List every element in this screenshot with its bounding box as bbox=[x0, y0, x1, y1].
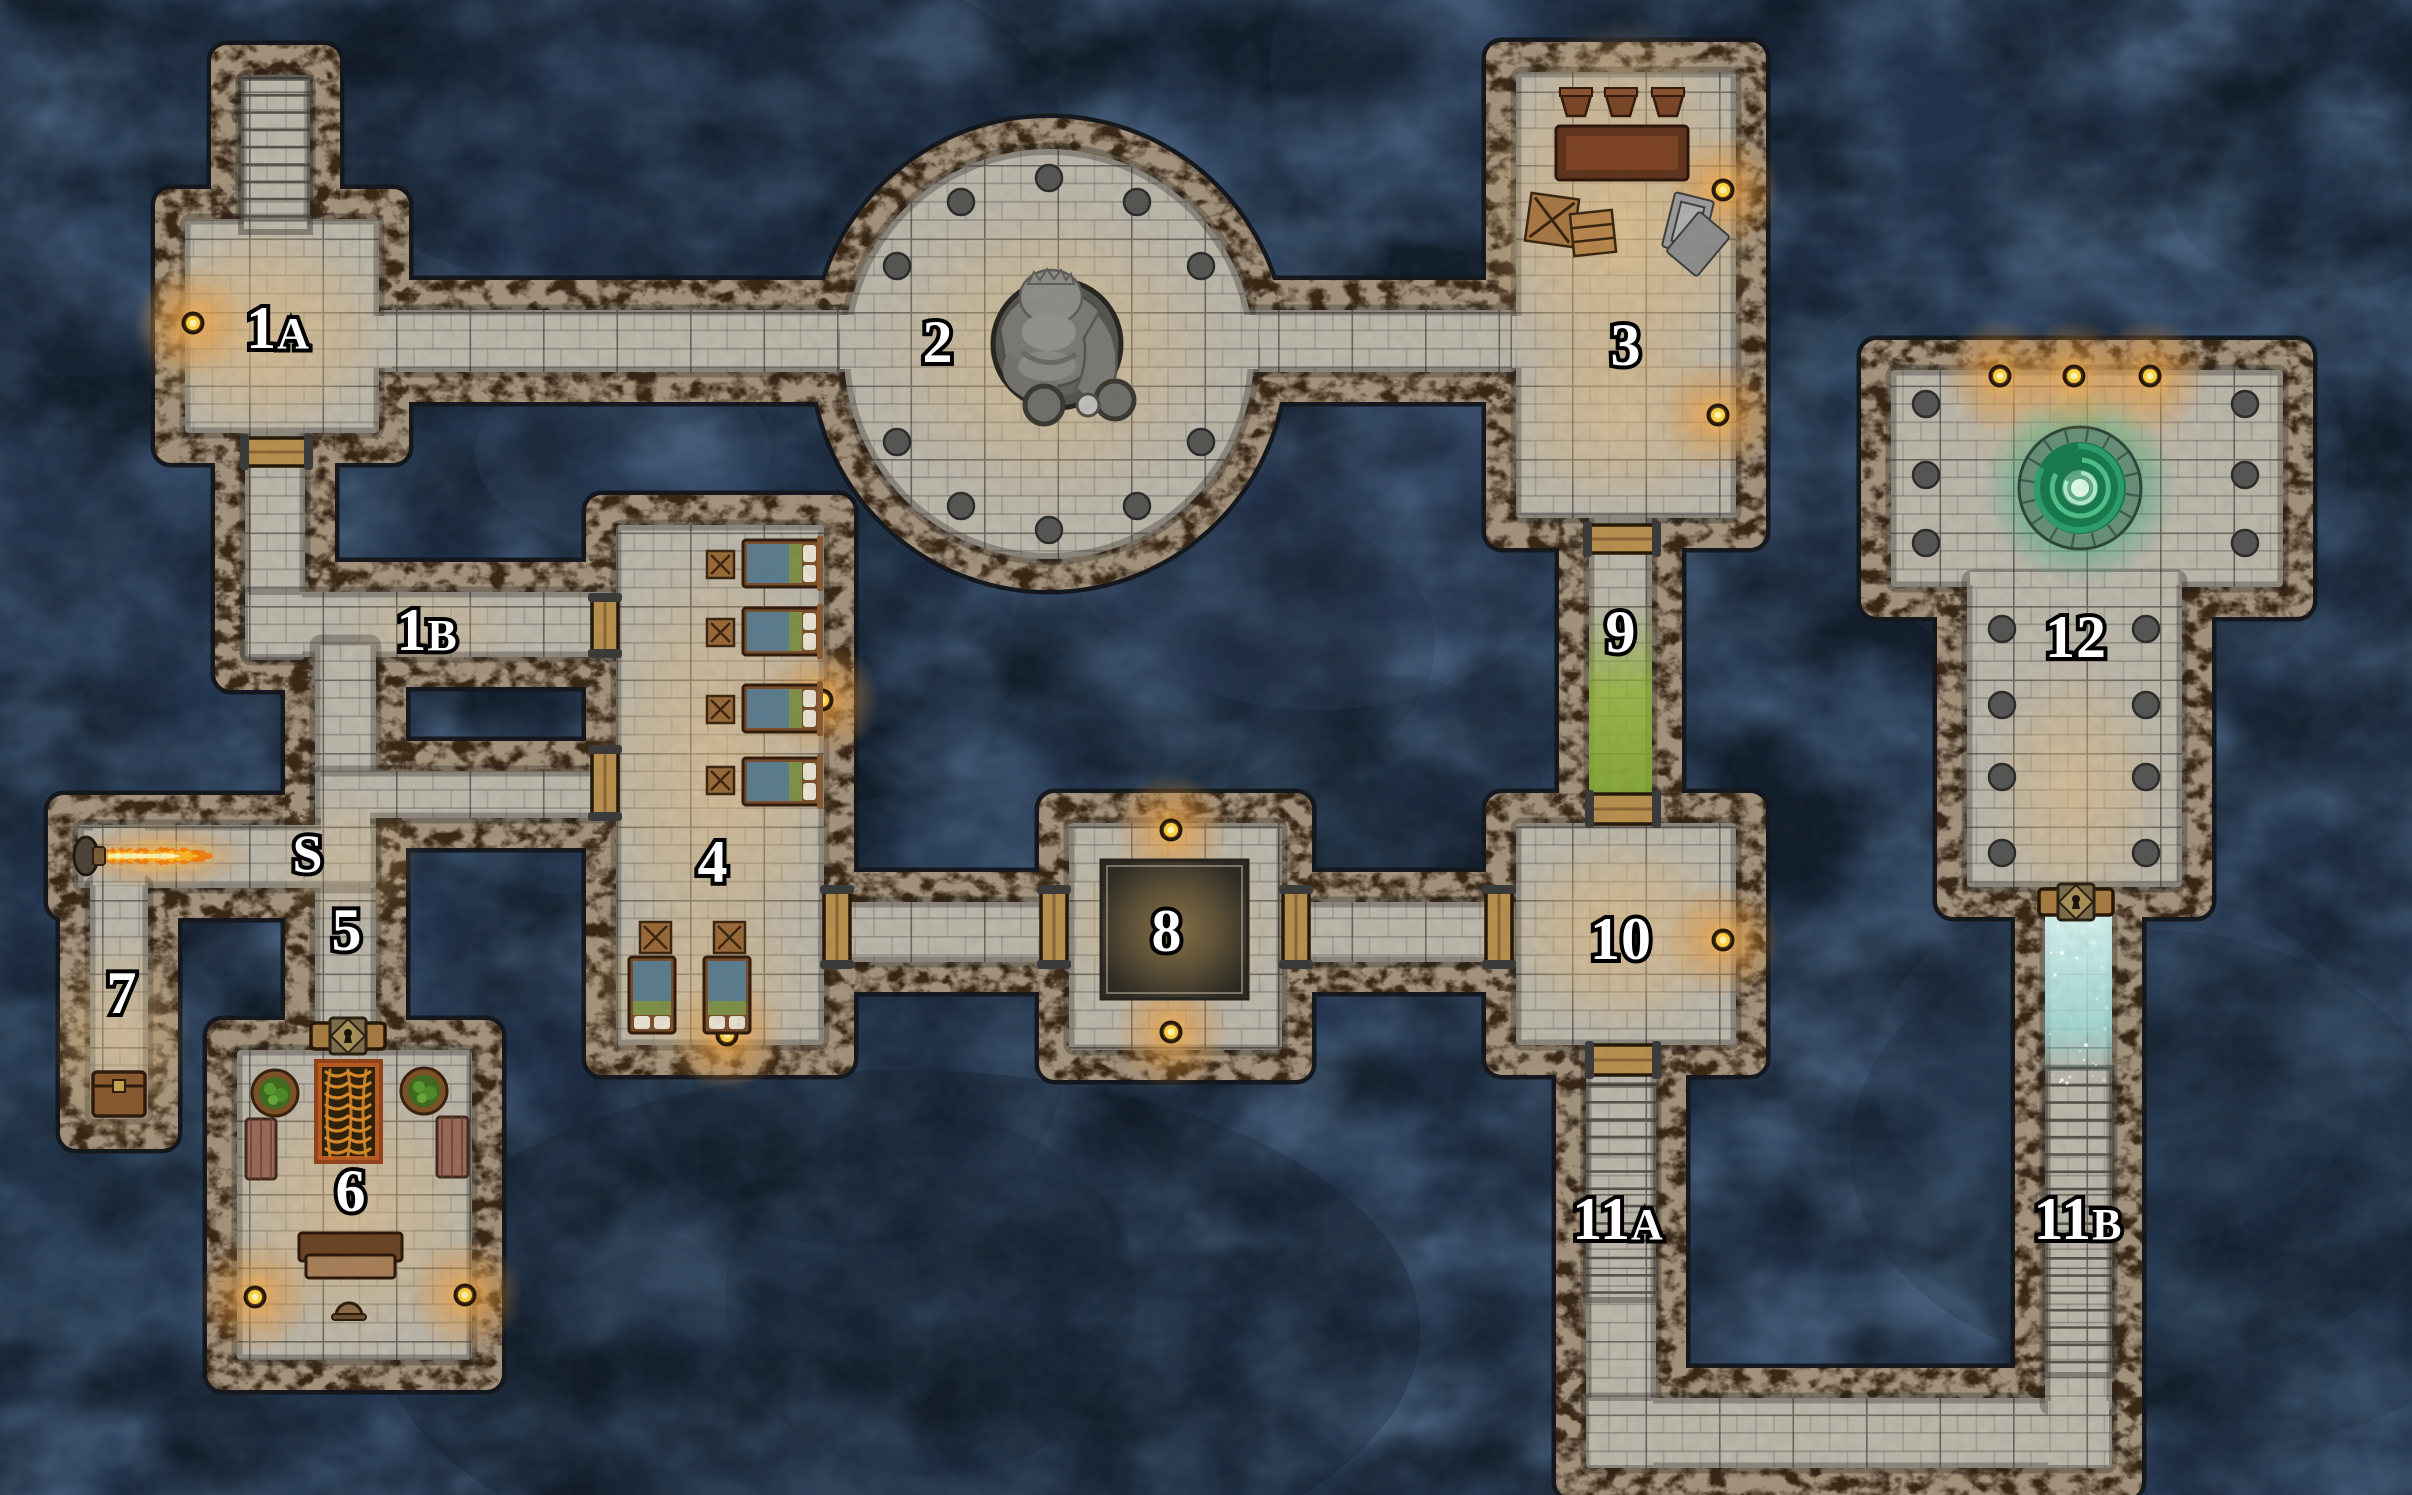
svg-text:5: 5 bbox=[332, 897, 363, 963]
svg-text:12: 12 bbox=[2045, 604, 2107, 670]
svg-text:10: 10 bbox=[1590, 906, 1652, 972]
svg-text:4: 4 bbox=[698, 829, 729, 895]
svg-text:3: 3 bbox=[1611, 312, 1642, 378]
svg-text:S: S bbox=[292, 824, 323, 884]
svg-text:8: 8 bbox=[1152, 898, 1183, 964]
svg-text:9: 9 bbox=[1606, 599, 1637, 665]
svg-text:6: 6 bbox=[336, 1158, 367, 1224]
svg-text:2: 2 bbox=[923, 309, 954, 375]
svg-text:7: 7 bbox=[107, 960, 138, 1026]
